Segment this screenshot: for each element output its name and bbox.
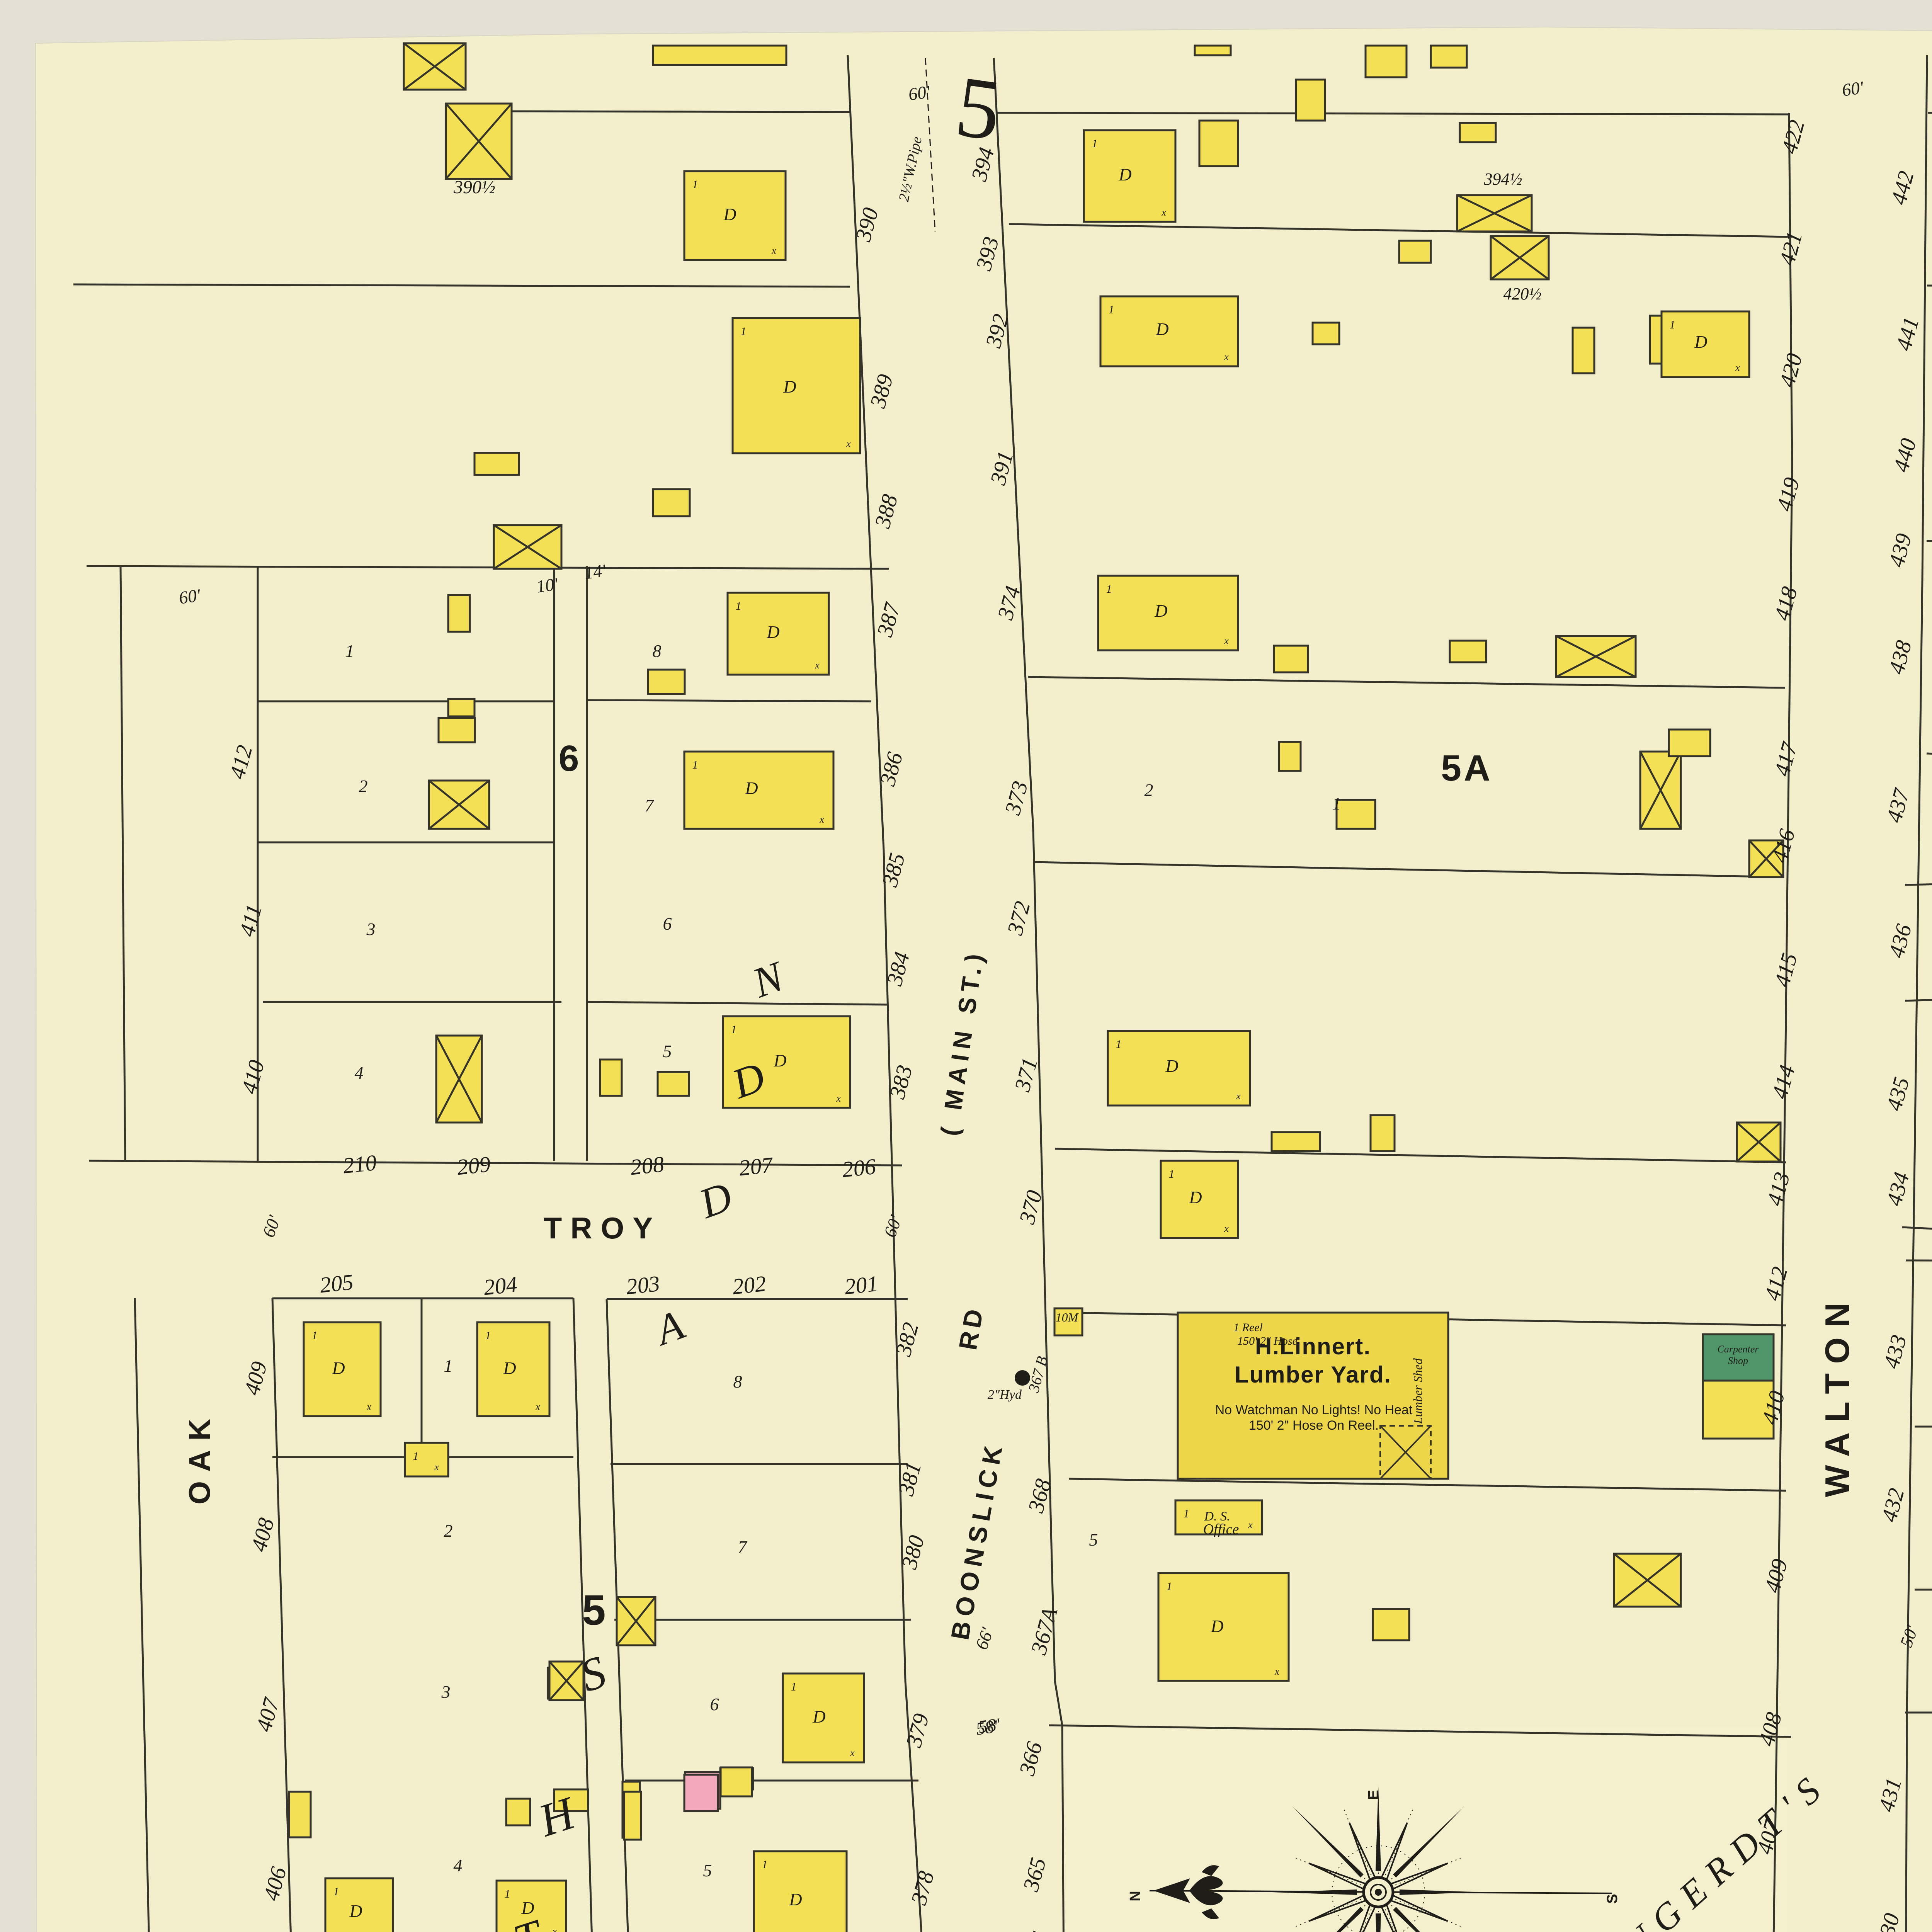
svg-text:D: D — [349, 1901, 362, 1921]
svg-text:x: x — [771, 245, 776, 256]
svg-text:1: 1 — [1332, 794, 1341, 813]
svg-text:1: 1 — [333, 1885, 339, 1898]
svg-text:2: 2 — [444, 1521, 453, 1541]
svg-text:x: x — [819, 814, 824, 825]
svg-text:1: 1 — [1106, 583, 1112, 595]
svg-text:WALTON: WALTON — [1818, 1293, 1856, 1497]
svg-text:x: x — [815, 660, 820, 671]
svg-text:4: 4 — [355, 1063, 364, 1083]
svg-text:5: 5 — [703, 1861, 712, 1880]
svg-text:1: 1 — [736, 600, 742, 612]
svg-text:58': 58' — [977, 1714, 1002, 1736]
svg-text:1: 1 — [1167, 1580, 1172, 1593]
svg-text:x: x — [1248, 1519, 1253, 1531]
svg-text:204: 204 — [482, 1272, 518, 1300]
svg-text:150' 2" Hose: 150' 2" Hose — [1237, 1335, 1298, 1347]
svg-text:1: 1 — [1670, 318, 1675, 331]
svg-text:D: D — [1118, 165, 1131, 184]
svg-text:210: 210 — [342, 1150, 378, 1179]
svg-text:E: E — [1366, 1790, 1382, 1799]
svg-text:207: 207 — [738, 1152, 774, 1181]
svg-text:6: 6 — [710, 1694, 719, 1714]
svg-text:60': 60' — [907, 82, 932, 104]
svg-text:1: 1 — [413, 1450, 419, 1463]
svg-text:1 Reel: 1 Reel — [1233, 1321, 1263, 1334]
svg-text:D: D — [789, 1889, 802, 1909]
svg-text:x: x — [1274, 1666, 1279, 1677]
svg-text:203: 203 — [625, 1271, 661, 1299]
svg-text:x: x — [1735, 362, 1740, 373]
svg-text:Lumber Shed: Lumber Shed — [1411, 1358, 1425, 1424]
svg-text:150' 2" Hose On Reel.: 150' 2" Hose On Reel. — [1249, 1418, 1379, 1433]
svg-text:1: 1 — [762, 1858, 768, 1871]
svg-text:No Watchman No Lights! No Heat: No Watchman No Lights! No Heat — [1215, 1403, 1413, 1417]
svg-text:4: 4 — [454, 1855, 463, 1875]
svg-text:390½: 390½ — [453, 177, 495, 197]
svg-text:10M: 10M — [1056, 1310, 1079, 1324]
svg-text:1: 1 — [731, 1023, 737, 1036]
svg-text:x: x — [552, 1926, 557, 1932]
svg-text:2: 2 — [359, 776, 368, 796]
svg-text:D: D — [332, 1358, 345, 1378]
svg-text:201: 201 — [843, 1271, 879, 1299]
svg-text:1: 1 — [505, 1888, 510, 1900]
svg-text:x: x — [850, 1747, 855, 1759]
svg-text:D: D — [723, 204, 736, 224]
svg-text:6: 6 — [559, 738, 579, 779]
svg-text:x: x — [535, 1401, 540, 1412]
svg-text:1: 1 — [692, 178, 698, 191]
svg-text:1: 1 — [1116, 1038, 1122, 1051]
svg-text:205: 205 — [318, 1269, 354, 1298]
svg-text:209: 209 — [456, 1151, 492, 1180]
svg-text:D: D — [1165, 1056, 1178, 1076]
svg-text:S: S — [1604, 1894, 1621, 1903]
svg-text:1: 1 — [1092, 137, 1098, 150]
svg-text:Lumber Yard.: Lumber Yard. — [1235, 1362, 1391, 1388]
svg-text:2: 2 — [1145, 780, 1153, 800]
svg-text:D: D — [773, 1051, 786, 1070]
svg-text:D: D — [1154, 601, 1167, 621]
svg-text:5: 5 — [582, 1587, 605, 1634]
svg-text:1: 1 — [791, 1680, 797, 1693]
svg-text:60': 60' — [178, 585, 202, 607]
svg-text:TROY: TROY — [544, 1211, 662, 1245]
svg-text:1: 1 — [692, 759, 698, 771]
svg-text:D: D — [1155, 319, 1168, 339]
svg-text:1: 1 — [1184, 1507, 1189, 1520]
svg-text:x: x — [846, 438, 851, 449]
svg-text:x: x — [836, 1093, 841, 1104]
svg-text:D: D — [766, 622, 779, 642]
svg-text:2"Hyd: 2"Hyd — [988, 1388, 1022, 1402]
svg-text:5: 5 — [663, 1041, 672, 1061]
svg-text:Office: Office — [1203, 1521, 1239, 1537]
svg-text:60': 60' — [1841, 77, 1866, 100]
svg-text:D: D — [812, 1707, 825, 1726]
svg-text:1: 1 — [485, 1329, 491, 1342]
svg-text:Carpenter: Carpenter — [1718, 1344, 1759, 1355]
svg-text:5A: 5A — [1441, 748, 1492, 789]
svg-text:1: 1 — [312, 1329, 318, 1342]
svg-text:10': 10' — [535, 574, 560, 596]
svg-text:394½: 394½ — [1484, 170, 1522, 189]
svg-text:x: x — [1224, 351, 1229, 362]
svg-text:1: 1 — [1109, 303, 1114, 316]
svg-text:7: 7 — [738, 1537, 748, 1557]
svg-text:6: 6 — [663, 914, 672, 934]
svg-text:7: 7 — [645, 796, 655, 815]
svg-text:208: 208 — [629, 1151, 665, 1180]
svg-text:x: x — [366, 1401, 371, 1412]
svg-text:8: 8 — [733, 1372, 742, 1391]
svg-text:14': 14' — [583, 560, 608, 583]
svg-text:x: x — [1224, 1223, 1229, 1234]
svg-text:D: D — [745, 778, 758, 798]
svg-text:x: x — [434, 1461, 439, 1473]
svg-text:1: 1 — [345, 641, 354, 661]
svg-text:Shop: Shop — [1728, 1355, 1748, 1366]
svg-text:x: x — [1236, 1090, 1241, 1102]
svg-text:D: D — [1189, 1187, 1202, 1207]
svg-text:N: N — [1127, 1891, 1143, 1901]
svg-text:D: D — [1210, 1616, 1223, 1636]
svg-text:1: 1 — [741, 325, 747, 338]
svg-text:206: 206 — [841, 1154, 877, 1182]
svg-text:3: 3 — [441, 1682, 451, 1702]
svg-text:D: D — [1694, 332, 1707, 352]
svg-text:D: D — [503, 1358, 516, 1378]
svg-text:202: 202 — [731, 1271, 767, 1299]
svg-text:1: 1 — [1169, 1168, 1175, 1180]
svg-text:x: x — [1161, 207, 1166, 218]
svg-text:3: 3 — [366, 919, 376, 939]
svg-text:D: D — [783, 377, 796, 396]
svg-text:420½: 420½ — [1503, 284, 1542, 303]
svg-text:5: 5 — [1089, 1530, 1098, 1549]
svg-text:x: x — [1224, 635, 1229, 646]
svg-text:OAK: OAK — [182, 1410, 216, 1504]
svg-text:8: 8 — [653, 641, 662, 661]
svg-text:1: 1 — [444, 1356, 453, 1376]
